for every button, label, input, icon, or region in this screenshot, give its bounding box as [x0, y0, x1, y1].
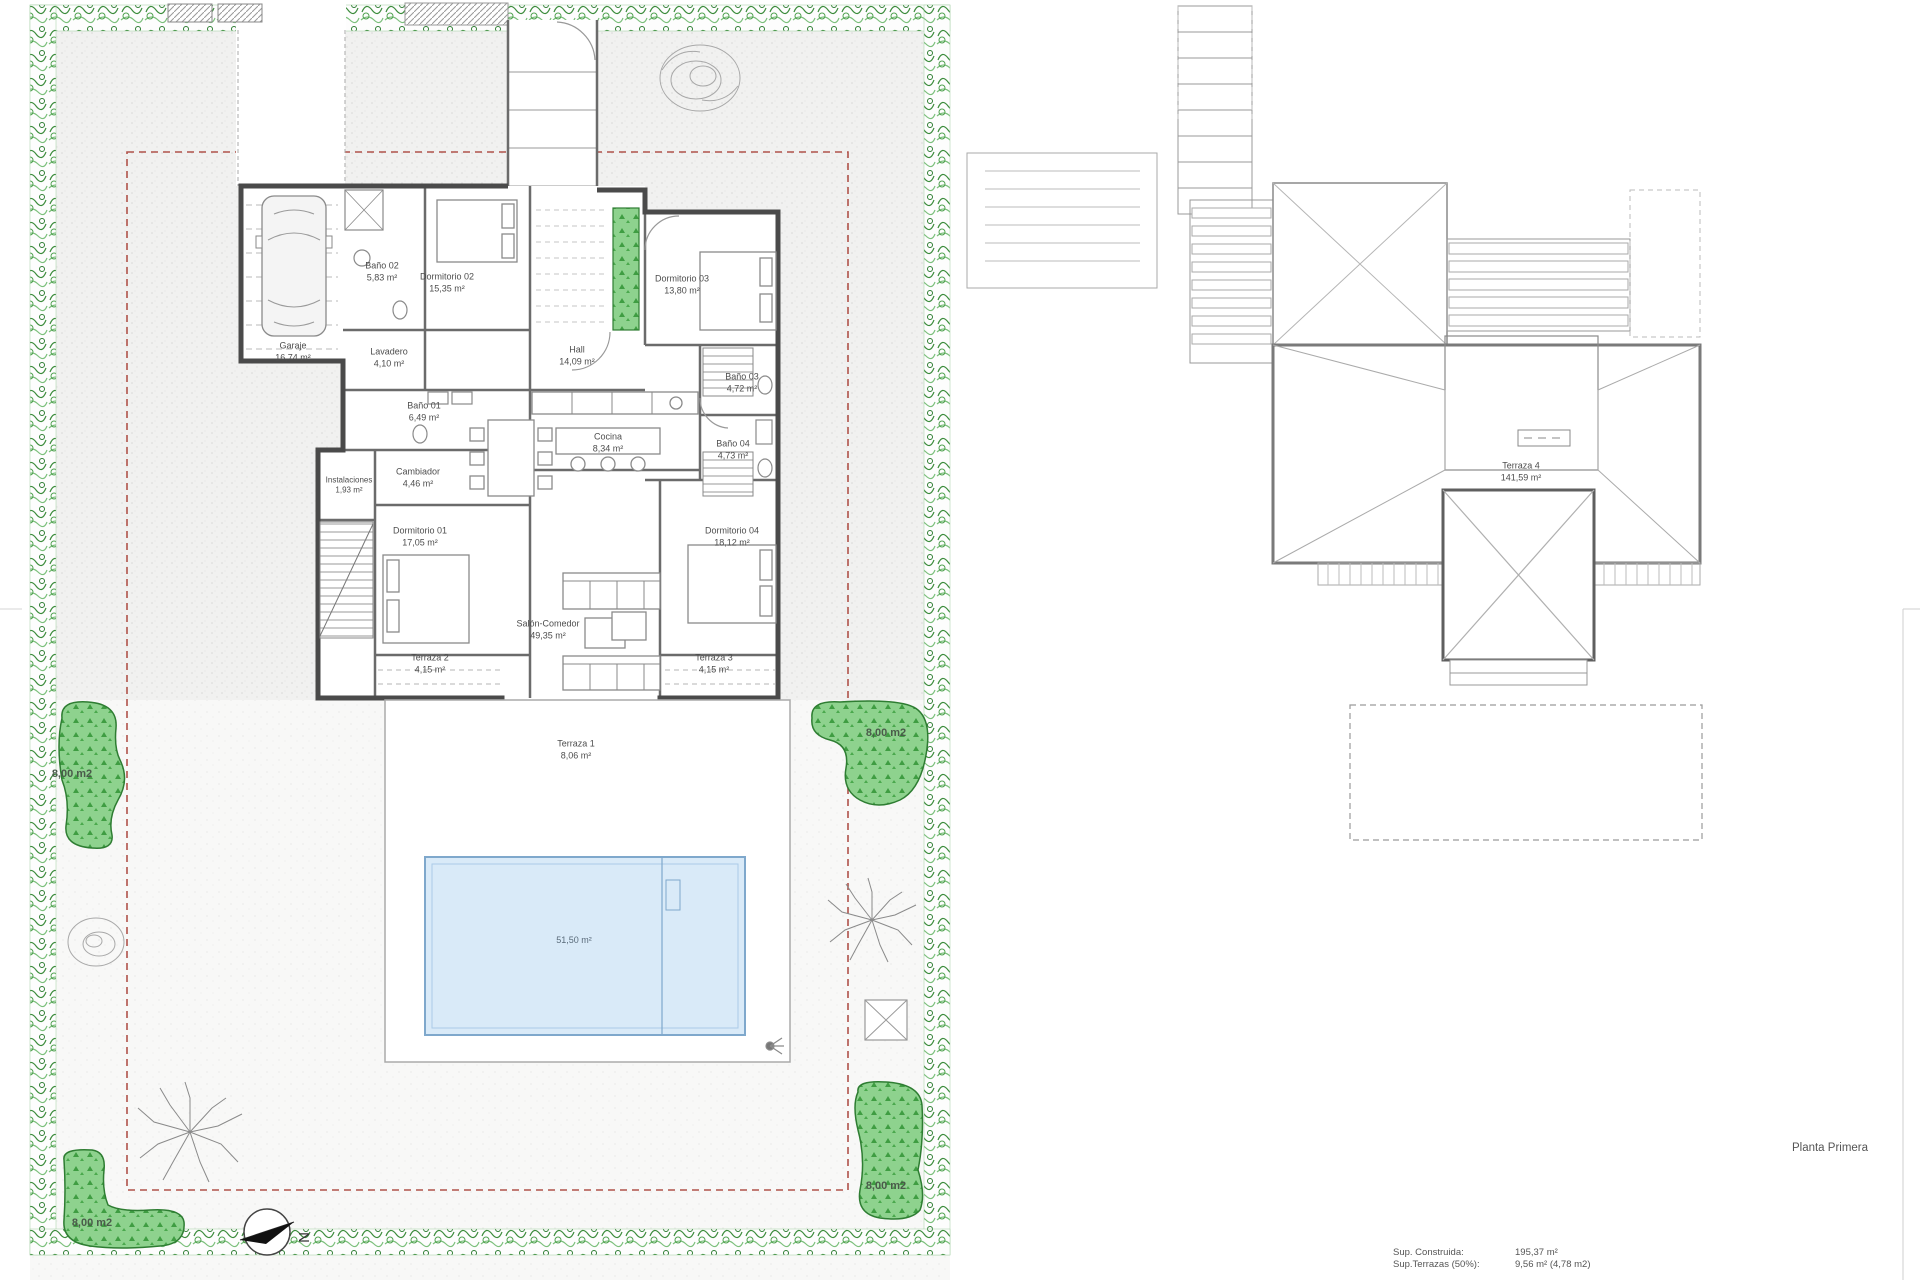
entry-steps	[508, 20, 597, 190]
floor-plan-sheet: N	[0, 0, 1920, 1280]
lawn-area-label: 8,00 m2	[72, 1217, 112, 1229]
room-label-terraza-1: Terraza 18,06 m²	[557, 738, 595, 761]
floor-plan-drawing: N	[0, 0, 1920, 1280]
room-label-dormitorio-01: Dormitorio 0117,05 m²	[393, 525, 447, 548]
summary-row: Sup.Terrazas (50%):9,56 m² (4,78 m2)	[1393, 1259, 1591, 1271]
pool-projection	[1350, 705, 1702, 840]
room-label-lavadero: Lavadero4,10 m²	[370, 346, 408, 369]
lawn-area-label: 8,00 m2	[866, 727, 906, 739]
paver-square	[865, 1000, 907, 1040]
lawn-area-label: 8,00 m2	[866, 1180, 906, 1192]
summary-row: Sup. Construida:195,37 m²	[1393, 1247, 1591, 1259]
room-label-instalaciones: Instalaciones1,93 m²	[326, 476, 373, 497]
area-summary: Sup. Construida:195,37 m² Sup.Terrazas (…	[1393, 1247, 1591, 1271]
room-label-bano-04: Baño 044,73 m²	[716, 438, 750, 461]
room-label-terraza-4: Terraza 4141,59 m²	[1501, 460, 1542, 483]
room-label-garaje: Garaje16,74 m²	[275, 340, 311, 363]
planter	[613, 208, 639, 330]
room-label-terraza-2: Terraza 24,15 m²	[411, 652, 449, 675]
entrance-gate-ramp	[405, 3, 508, 25]
room-label-terraza-3: Terraza 34,15 m²	[695, 652, 733, 675]
room-label-bano-01: Baño 016,49 m²	[407, 400, 441, 423]
room-label-cambiador: Cambiador4,46 m²	[396, 466, 440, 489]
pool	[425, 857, 745, 1035]
lawn-area-label: 8,00 m2	[52, 768, 92, 780]
room-label-dormitorio-04: Dormitorio 0418,12 m²	[705, 525, 759, 548]
room-label-bano-02: Baño 025,83 m²	[365, 260, 399, 283]
car	[262, 196, 326, 336]
plan-title: Planta Primera	[1792, 1142, 1868, 1154]
north-letter: N	[295, 1232, 312, 1243]
room-label-dormitorio-02: Dormitorio 0215,35 m²	[420, 271, 474, 294]
utility-box	[218, 4, 262, 22]
pool-area-label: 51,50 m²	[556, 935, 592, 945]
room-label-cocina: Cocina8,34 m²	[593, 431, 624, 454]
room-label-salon-comedor: Salón-Comedor49,35 m²	[516, 618, 579, 641]
utility-box	[168, 4, 212, 22]
ground-floor-plan: N	[30, 3, 950, 1280]
room-label-bano-03: Baño 034,72 m²	[725, 371, 759, 394]
room-label-dormitorio-03: Dormitorio 0313,80 m²	[655, 273, 709, 296]
room-label-hall: Hall14,09 m²	[559, 344, 595, 367]
